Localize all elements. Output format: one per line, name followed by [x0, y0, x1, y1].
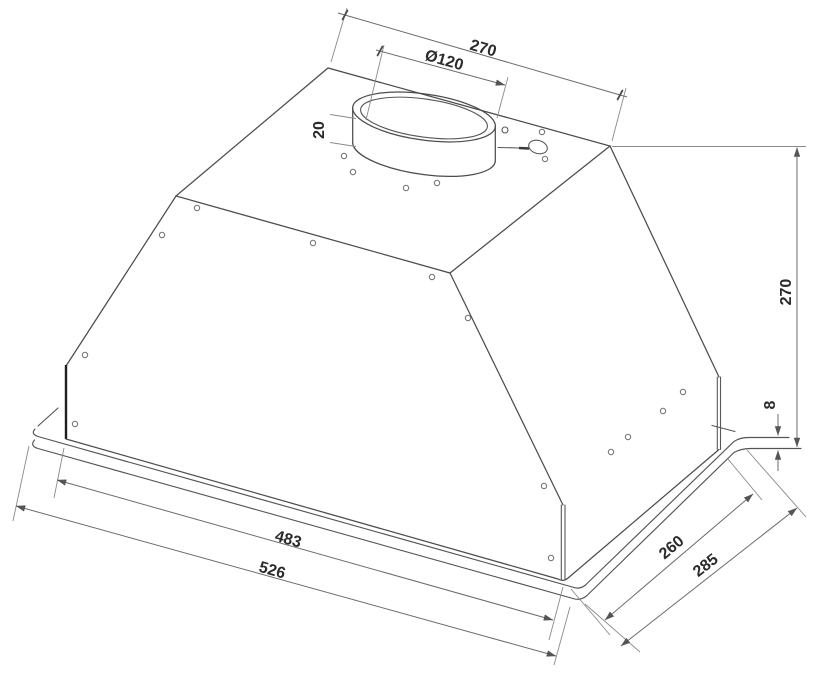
dim-label-body-depth-260: 260: [656, 533, 687, 563]
right-slant-edge: [610, 146, 719, 377]
left-slant-edge: [66, 196, 176, 366]
collar-small-hole: [502, 127, 508, 133]
dim-flange-height: 8: [762, 400, 779, 471]
dim-label-overall-width-526: 526: [257, 559, 287, 583]
cooker-hood-dimension-drawing: 270 Ø120 20 270: [0, 0, 829, 679]
dim-label-flange-height-8: 8: [762, 400, 779, 409]
technical-drawing-page: 270 Ø120 20 270: [0, 0, 829, 679]
dim-overall-width: 526: [13, 446, 570, 665]
pull-ring: [527, 138, 549, 156]
hood-top-face: [176, 68, 610, 273]
dim-label-duct-collar-height: 20: [311, 121, 328, 139]
front-slant-edge: [450, 273, 563, 505]
duct-collar-inner-rim: [358, 90, 490, 145]
bottom-flange-frame: [33, 408, 801, 599]
duct-collar-base-arc: [353, 144, 496, 177]
dim-label-body-width-483: 483: [273, 528, 303, 552]
dim-label-top-edge-270: 270: [468, 37, 498, 61]
dim-top-edge: 270: [331, 8, 627, 141]
flange-bottom-rim: [33, 440, 801, 599]
dim-overall-depth: 285: [585, 450, 806, 652]
dim-body-depth: 260: [571, 459, 762, 635]
hood-body-outline: [66, 68, 721, 580]
pull-cable: [498, 148, 520, 149]
dim-label-duct-diameter: Ø120: [423, 47, 465, 74]
dim-duct-collar-height: 20: [311, 115, 356, 147]
flange-top-rim-left-stub: [38, 408, 58, 426]
duct-collar: [349, 84, 548, 176]
dimensions: 270 Ø120 20 270: [13, 8, 806, 665]
weld-dots: [72, 129, 685, 560]
flange-top-rim-right-stub: [712, 426, 735, 432]
pull-cable-sleeve: [519, 148, 529, 149]
dim-label-overall-depth-285: 285: [690, 551, 722, 581]
dim-body-width: 483: [54, 448, 563, 640]
dim-label-body-height-270: 270: [778, 279, 795, 306]
